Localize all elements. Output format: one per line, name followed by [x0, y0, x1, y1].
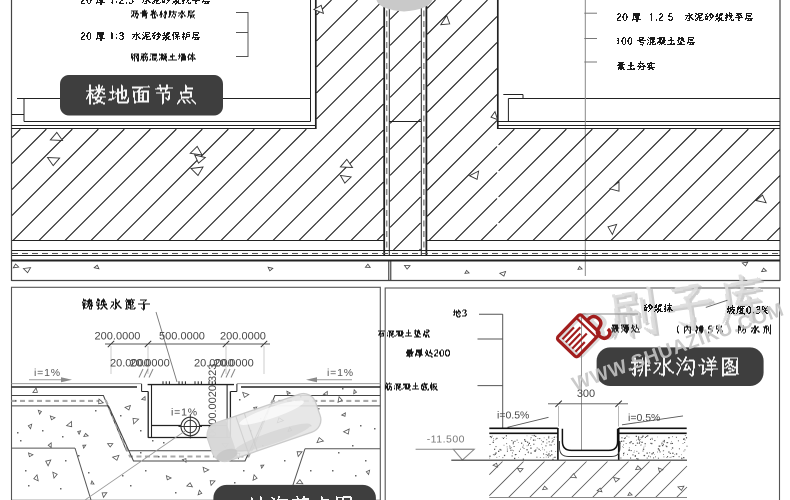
svg-text:i=0.5%: i=0.5% — [628, 412, 660, 424]
svg-text:200.0000: 200.0000 — [95, 331, 141, 343]
svg-text:20.0000: 20.0000 — [214, 358, 254, 370]
svg-text:-11.500: -11.500 — [427, 434, 465, 446]
svg-text:500.0000: 500.0000 — [159, 331, 205, 343]
svg-text:20.0000: 20.0000 — [130, 358, 170, 370]
svg-text:i=1%: i=1% — [34, 367, 61, 379]
svg-text:i=0.5%: i=0.5% — [497, 410, 529, 422]
svg-text:i=1%: i=1% — [171, 407, 198, 419]
svg-text:i=1%: i=1% — [327, 367, 354, 379]
svg-text:200.0000: 200.0000 — [220, 331, 266, 343]
